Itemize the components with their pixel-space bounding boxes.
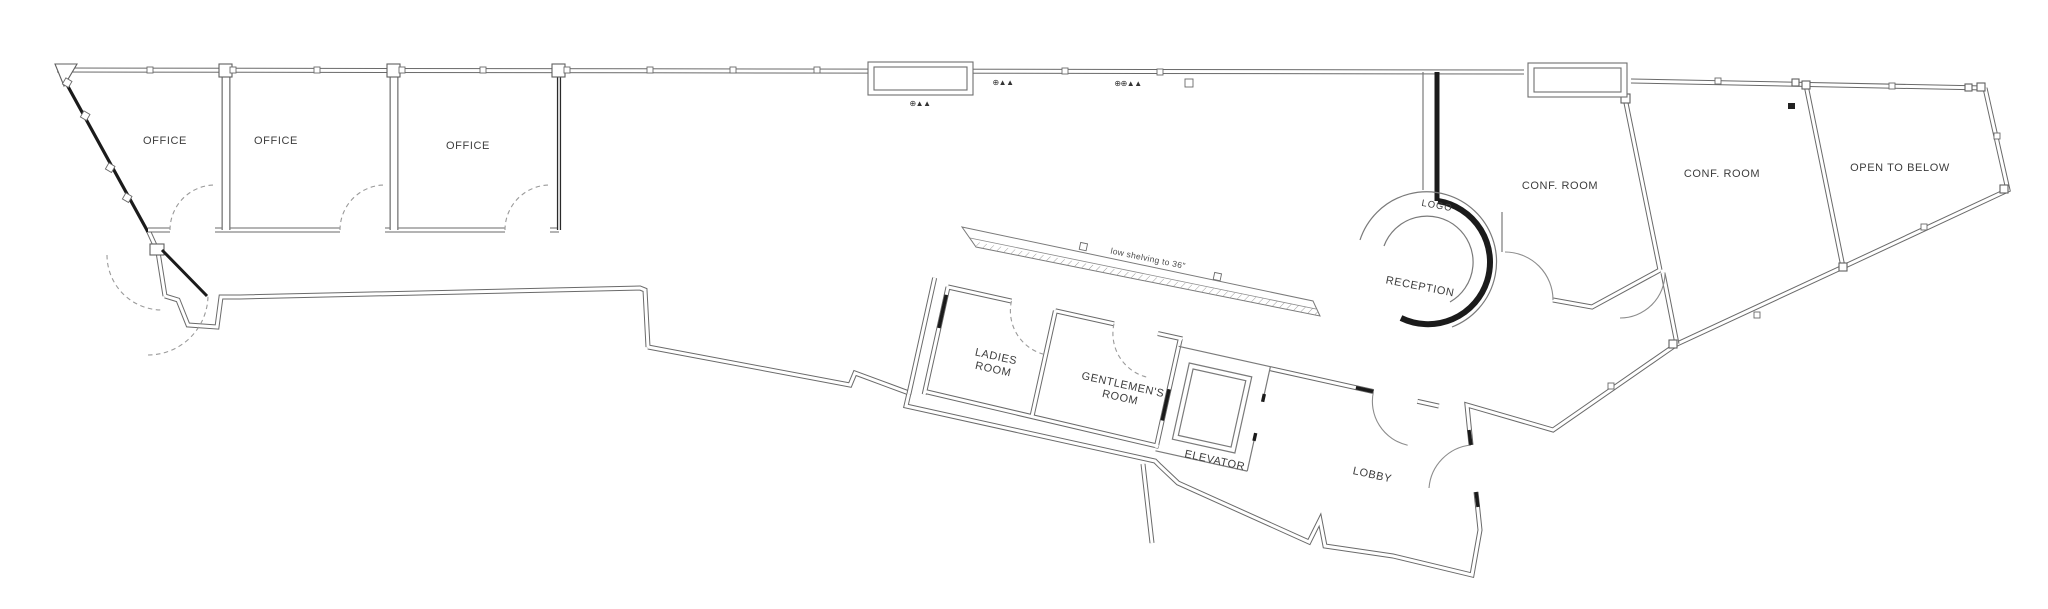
- reception-label: RECEPTION: [1385, 274, 1456, 299]
- open-to-below-label: OPEN TO BELOW: [1850, 162, 1950, 174]
- window-boxes: [868, 62, 1627, 97]
- lobby-label: LOBBY: [1352, 465, 1393, 485]
- window-mullions: [62, 67, 2008, 389]
- entry-door-leaf: [162, 250, 207, 296]
- door-arcs: [107, 185, 1665, 507]
- fixture-box: [1185, 79, 1193, 87]
- floor-plan: LADIES ROOM GENTLEMEN'S ROOM ELEVATOR LO…: [0, 0, 2048, 609]
- fixture-symbol-icon: ⊕▲▲: [909, 99, 930, 108]
- office-1-label: OFFICE: [143, 135, 187, 147]
- reception-desk-outer: [1360, 192, 1497, 327]
- glazed-entry-wall: [55, 64, 148, 232]
- room-labels: OFFICE OFFICE OFFICE CONF. ROOM CONF. RO…: [143, 135, 1950, 300]
- conf-room-east-label: CONF. ROOM: [1684, 168, 1760, 180]
- office-3-label: OFFICE: [446, 140, 490, 152]
- exterior-walls: [57, 70, 2008, 575]
- interior-walls: [148, 64, 1847, 344]
- service-core: LADIES ROOM GENTLEMEN'S ROOM ELEVATOR LO…: [908, 278, 1442, 512]
- office-2-label: OFFICE: [254, 135, 298, 147]
- floor-plan-drawing: LADIES ROOM GENTLEMEN'S ROOM ELEVATOR LO…: [0, 0, 2048, 609]
- conf-room-west-label: CONF. ROOM: [1522, 180, 1598, 192]
- elevator-label: ELEVATOR: [1183, 448, 1246, 473]
- low-shelving: [962, 227, 1320, 316]
- fixture-symbol-icon: ⊕▲▲: [992, 78, 1013, 87]
- logo-label: LOGO: [1421, 198, 1454, 214]
- door-stop: [1788, 103, 1795, 109]
- fixture-symbol-icon: ⊕⊕▲▲: [1114, 79, 1141, 88]
- elevator-shaft-inner: [1178, 369, 1245, 447]
